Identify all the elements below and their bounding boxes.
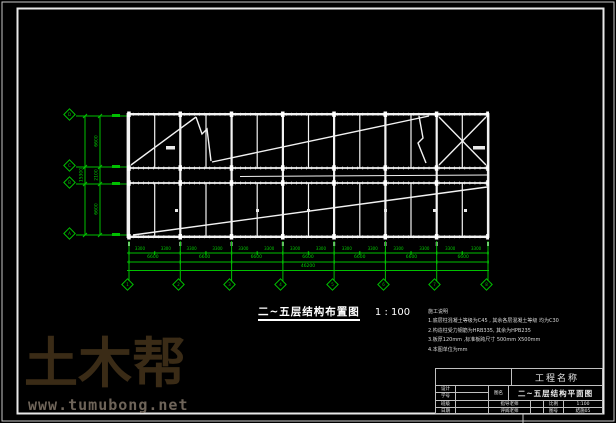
construction-notes: 施工说明 1.底层柱混凝土等级为C45 , 其余各层混凝土等级 均为C30 2.… [428,308,559,355]
dim-text: 46200 [301,264,315,269]
bottom-dims-total: 46200 [127,264,489,269]
title-block: 工程名称 设计 学号 班级 日期 图名 二~五层结构平面图 [435,368,603,414]
dim-text: 3300 [360,246,386,251]
drawing-name-label: 图名 [489,386,509,400]
drawing-caption: 二~五层结构布置图 1 : 100 [258,300,410,319]
advisor-label: 指导老师 [489,401,531,407]
title-block-values [456,386,489,414]
left-axis-end-marks [112,114,120,236]
axis-label: D [66,111,73,118]
dim-text: 6600 [282,255,334,260]
bottom-dims-half: 3300 3300 3300 3300 3300 3300 3300 3300 … [127,246,489,251]
date-value [456,408,489,414]
dim-text: 6600 [95,135,100,146]
axis-label: 7 [431,281,438,288]
dim-text: 3300 [230,246,256,251]
notes-header: 施工说明 [428,308,559,317]
notes-line: 1.底层柱混凝土等级为C45 , 其余各层混凝土等级 均为C30 [428,317,559,326]
notes-line: 4.本图单位为mm [428,346,559,355]
axis-label: 1 [124,281,131,288]
dim-text: 15300 [80,168,85,182]
axis-label: 4 [277,281,284,288]
dim-text: 2100 [95,169,100,180]
scale-label: 比例 [544,401,564,407]
dim-text: 6600 [95,203,100,214]
student-id-label: 学号 [436,393,456,400]
dim-text: 3300 [127,246,153,251]
axis-label: 8 [483,281,490,288]
title-block-labels: 设计 学号 班级 日期 [436,386,456,414]
drawing-number-value: 结施05 [564,408,602,414]
dim-text: 3300 [256,246,282,251]
project-name-label: 工程名称 [512,369,602,385]
watermark-url: www.tumubong.net [28,396,189,414]
dim-text: 3300 [463,246,489,251]
dim-text: 3300 [437,246,463,251]
drawing-number-label: 图号 [544,408,564,414]
dim-text: 6600 [334,255,386,260]
bottom-dims-bay: 6600 6600 6600 6600 6600 6600 6600 [127,255,489,260]
axis-label: 3 [226,281,233,288]
date-label: 日期 [436,408,456,414]
cad-sheet: 二~五层结构布置图 1 : 100 施工说明 1.底层柱混凝土等级为C45 , … [0,0,616,423]
notes-line: 2.构造柱受力钢筋为HRB335, 其余为HPB235 [428,327,559,336]
scale-value: 1:100 [564,401,602,407]
caption-title: 二~五层结构布置图 [258,306,360,321]
dim-text: 6600 [437,255,489,260]
dim-text: 6600 [230,255,282,260]
axis-label: C [66,162,73,169]
dim-text: 3300 [282,246,308,251]
dim-text: 3300 [153,246,179,251]
dim-text: 3300 [386,246,412,251]
axis-label: 2 [175,281,182,288]
title-block-empty-cell [436,369,512,385]
design-label: 设计 [436,386,456,393]
dim-text: 3300 [179,246,205,251]
advisor-value [531,401,544,407]
caption-scale: 1 : 100 [375,307,410,318]
class-label: 班级 [436,401,456,408]
axis-label: B [66,179,73,186]
dim-text: 3300 [308,246,334,251]
dim-text: 6600 [127,255,179,260]
reviewer-value [531,408,544,414]
dim-text: 3300 [205,246,231,251]
design-value [456,386,489,393]
dim-text: 3300 [334,246,360,251]
drawing-name: 二~五层结构平面图 [509,386,602,400]
student-id-value [456,393,489,400]
dim-text: 6600 [179,255,231,260]
reviewer-label: 评阅老师 [489,408,531,414]
watermark-logo: 土木帮 [24,334,186,394]
plan-diagonals [131,116,488,235]
axis-label: 6 [380,281,387,288]
dim-text: 6600 [386,255,438,260]
dim-text: 3300 [411,246,437,251]
axis-label: A [66,230,73,237]
notes-line: 3.板厚120mm ,标准板跨尺寸 500mm X500mm [428,336,559,345]
axis-label: 5 [329,281,336,288]
class-value [456,401,489,408]
